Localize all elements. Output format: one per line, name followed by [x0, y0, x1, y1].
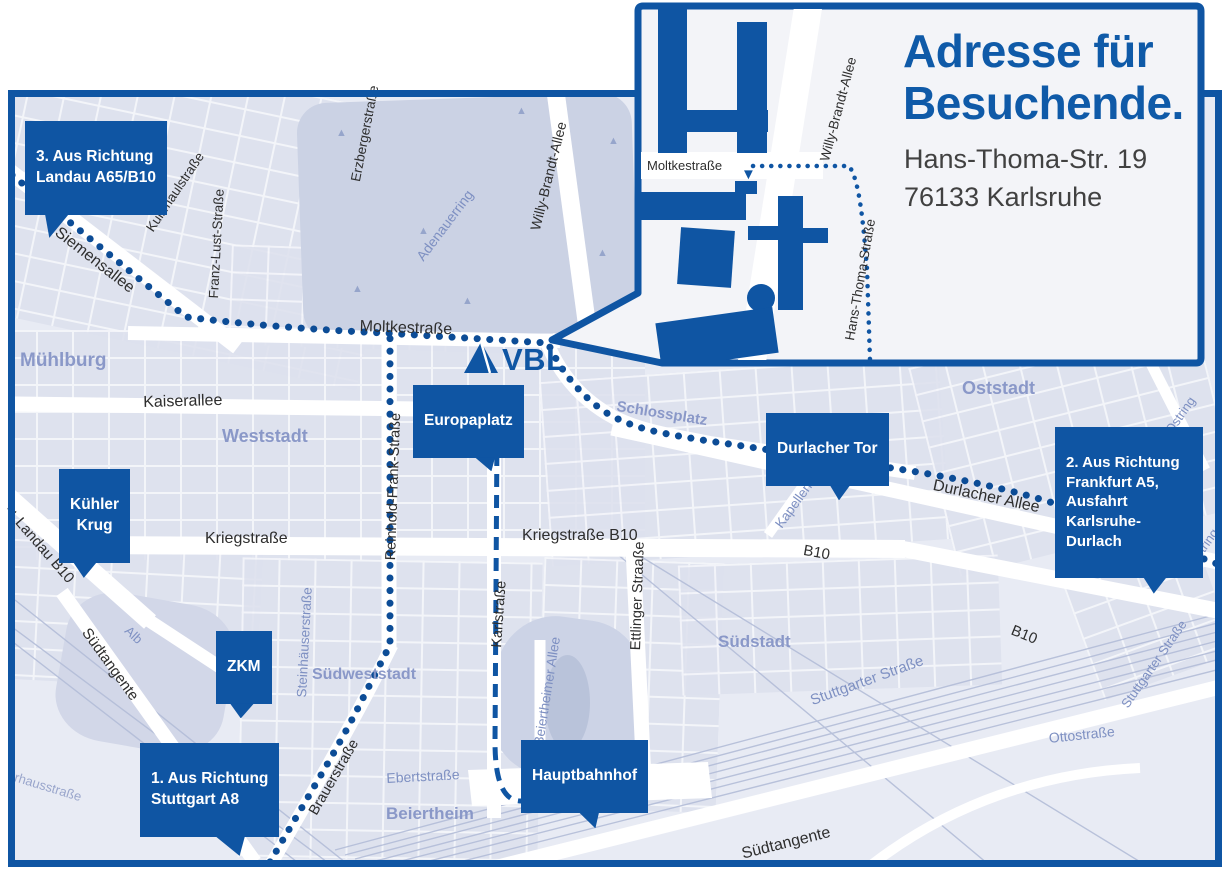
poi-badge-hauptbahnhof: Hauptbahnhof [521, 740, 648, 813]
vbl-pyramid-icon [463, 341, 499, 374]
poi-badge-kuehler-krug: Kühler Krug [59, 469, 130, 563]
vbl-logo-text: VBL [502, 345, 566, 374]
street-label-kriegstrasse: Kriegstraße [205, 530, 288, 548]
vbl-logo: VBL [463, 341, 566, 374]
route-badge-label: 1. Aus Richtung Stuttgart A8 [151, 770, 268, 807]
route-badge-label: 2. Aus Richtung Frankfurt A5, Ausfahrt K… [1066, 454, 1180, 550]
district-label-suedweststadt: Südweststadt [312, 666, 416, 684]
route-badge-label: 3. Aus Richtung Landau A65/B10 [36, 148, 156, 185]
poi-badge-label: Europaplatz [424, 412, 513, 429]
inset-street-label-moltkestrasse: Moltkestraße [647, 158, 722, 173]
inset-access-route [641, 9, 913, 360]
street-label-kaiserallee: Kaiserallee [143, 392, 223, 412]
district-label-suedstadt: Südstadt [718, 632, 791, 652]
poi-badge-durlacher-tor: Durlacher Tor [766, 413, 889, 486]
district-label-muehlburg: Mühlburg [20, 350, 107, 372]
entrance-arrow-icon: ▼ [741, 167, 756, 182]
inset-title: Adresse für Besuchende. [903, 26, 1203, 129]
street-label-moltkestrasse: Moltkestraße [359, 318, 452, 339]
poi-badge-zkm: ZKM [216, 631, 272, 704]
district-label-beiertheim: Beiertheim [386, 804, 474, 824]
street-label-kriegstrasse-b10: Kriegstraße B10 [522, 527, 638, 545]
poi-badge-label: Hauptbahnhof [532, 767, 637, 784]
route-badge-frankfurt: 2. Aus Richtung Frankfurt A5, Ausfahrt K… [1055, 427, 1203, 578]
poi-badge-label: Kühler Krug [70, 496, 119, 533]
district-label-weststadt: Weststadt [222, 426, 308, 447]
poi-badge-label: Durlacher Tor [777, 440, 878, 457]
inset-detail-map: ▼ Moltkestraße Willy-Brandt-Allee Hans-T… [641, 9, 913, 360]
route-badge-stuttgart: 1. Aus Richtung Stuttgart A8 [140, 743, 279, 837]
visitor-address: Hans-Thoma-Str. 19 76133 Karlsruhe [904, 140, 1147, 217]
district-label-oststadt: Oststadt [962, 378, 1035, 399]
poi-badge-europaplatz: Europaplatz [413, 385, 524, 458]
route-badge-landau: 3. Aus Richtung Landau A65/B10 [25, 121, 167, 215]
poi-badge-label: ZKM [227, 658, 261, 675]
directions-map-page: ▲ ▲ ▲ ▲ ▲ ▲ ▲ [0, 0, 1230, 874]
